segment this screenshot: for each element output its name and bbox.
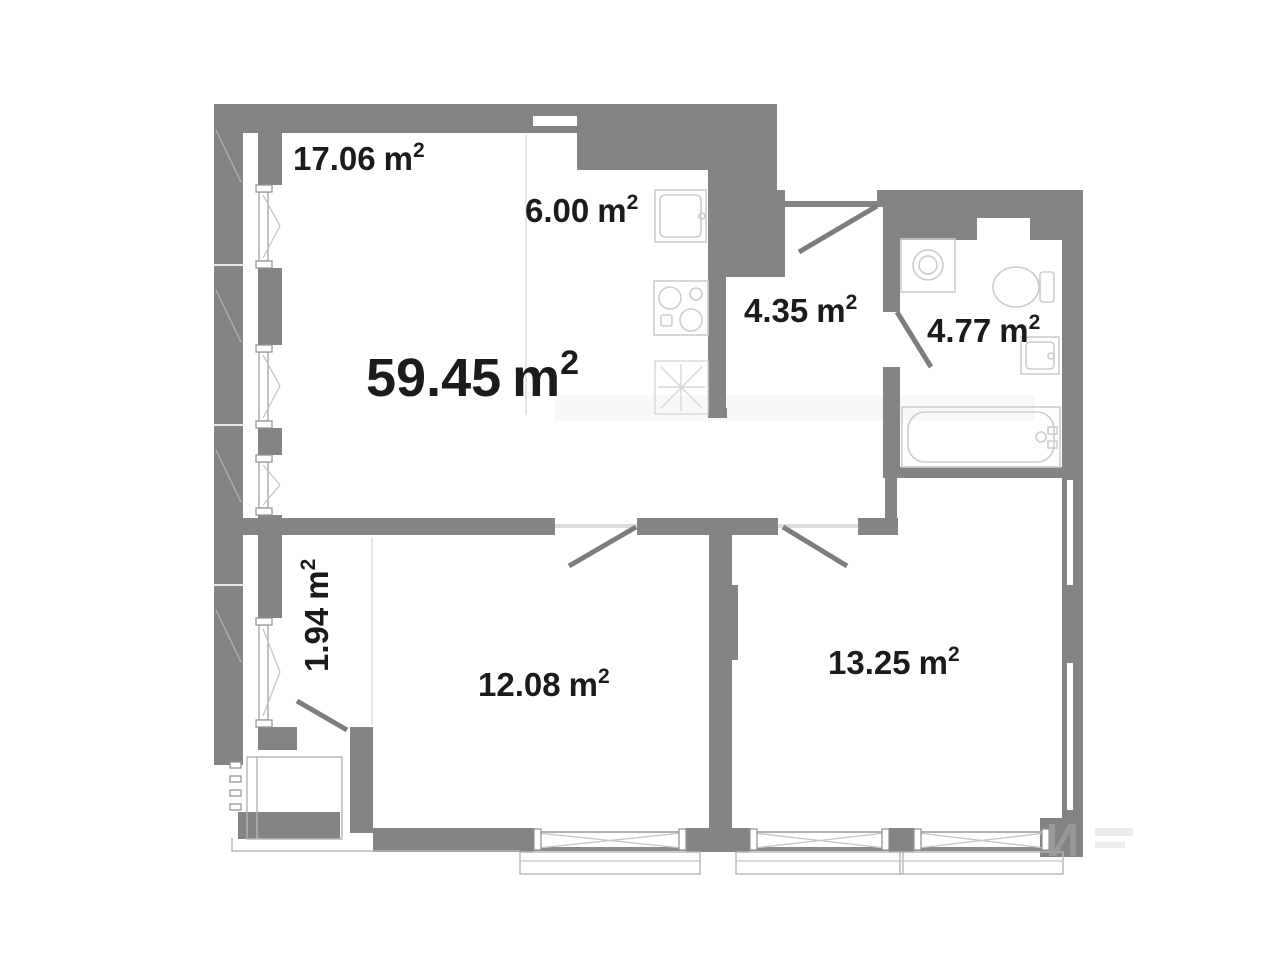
- ladder-rung: [230, 776, 241, 782]
- entrance-door-leaf: [799, 206, 877, 252]
- room-area-label-bedroom-right: 13.25m2: [828, 643, 960, 681]
- wall-segment: [350, 727, 373, 833]
- wall-segment: [258, 515, 282, 618]
- wall-segment: [898, 190, 1062, 218]
- bedroom-left-door-leaf: [569, 527, 636, 566]
- washing-machine: [901, 239, 955, 292]
- wall-segment: [238, 812, 340, 839]
- walls: [214, 104, 1083, 857]
- wall-segment: [1030, 218, 1062, 240]
- ladder-rung: [230, 762, 241, 768]
- wall-segment: [732, 585, 738, 660]
- total-area-label: 59.45m2: [366, 344, 579, 408]
- window: [256, 345, 280, 428]
- room-area-label-living: 17.06m2: [293, 139, 425, 177]
- wall-insulation-slot: [1067, 663, 1073, 810]
- window: [534, 829, 686, 851]
- wall-segment: [243, 518, 555, 535]
- wall-segment: [214, 104, 777, 133]
- bottom-windows: [520, 829, 1063, 874]
- wall-segment: [258, 268, 282, 345]
- window: [914, 829, 1049, 851]
- bedroom-right-door-leaf: [783, 527, 847, 566]
- window: [256, 618, 280, 727]
- balcony-door-leaf: [297, 701, 347, 730]
- wall-segment: [708, 170, 777, 192]
- wall-segment: [883, 467, 1062, 478]
- entrance-threshold: [785, 201, 877, 207]
- wall-segment: [577, 133, 777, 170]
- wall-segment: [889, 828, 914, 852]
- floor-plan: 17.06m2 6.00m2 59.45m2 4.35m2 4.77m2 1.9…: [0, 0, 1280, 960]
- wall-segment: [883, 367, 900, 478]
- wall-segment: [258, 133, 282, 185]
- window: [256, 455, 280, 515]
- stove: [654, 281, 708, 335]
- toilet: [993, 267, 1054, 307]
- kitchen-sink: [655, 190, 706, 242]
- watermark-band: [555, 395, 1035, 421]
- floor-plan-canvas: 17.06m2 6.00m2 59.45m2 4.35m2 4.77m2 1.9…: [0, 0, 1280, 960]
- window: [750, 829, 889, 851]
- kitchen-fixtures: [654, 190, 708, 414]
- wall-segment: [898, 218, 977, 240]
- room-area-label-hallway: 4.35m2: [744, 291, 857, 329]
- door-threshold: [555, 524, 637, 528]
- wall-segment: [708, 277, 726, 418]
- watermark-fragment: [1095, 842, 1125, 848]
- ladder-rung: [230, 804, 241, 810]
- wall-segment: [885, 478, 897, 523]
- watermark-letter: И: [1046, 814, 1079, 866]
- wall-segment: [708, 408, 727, 418]
- fridge-icon: [655, 361, 708, 414]
- wall-segment: [709, 535, 732, 833]
- wall-segment: [258, 428, 282, 455]
- room-area-label-wardrobe: 1.94m2: [297, 559, 335, 672]
- room-area-label-bedroom-left: 12.08m2: [478, 665, 610, 703]
- wall-segment: [883, 190, 900, 312]
- left-windows: [256, 185, 280, 727]
- wall-segment: [637, 518, 778, 535]
- bathroom-door-leaf: [897, 312, 931, 367]
- window: [256, 185, 280, 268]
- room-area-label-bathroom: 4.77m2: [927, 311, 1040, 349]
- room-area-label-kitchen: 6.00m2: [525, 191, 638, 229]
- wall-segment: [708, 190, 785, 277]
- wall-segment: [373, 828, 534, 852]
- wall-insulation-slot: [1067, 480, 1073, 585]
- wall-segment: [258, 727, 297, 750]
- ladder-rung: [230, 790, 241, 796]
- door-threshold: [778, 524, 858, 528]
- watermark-fragment: [1095, 828, 1133, 836]
- vent-slot: [533, 116, 577, 126]
